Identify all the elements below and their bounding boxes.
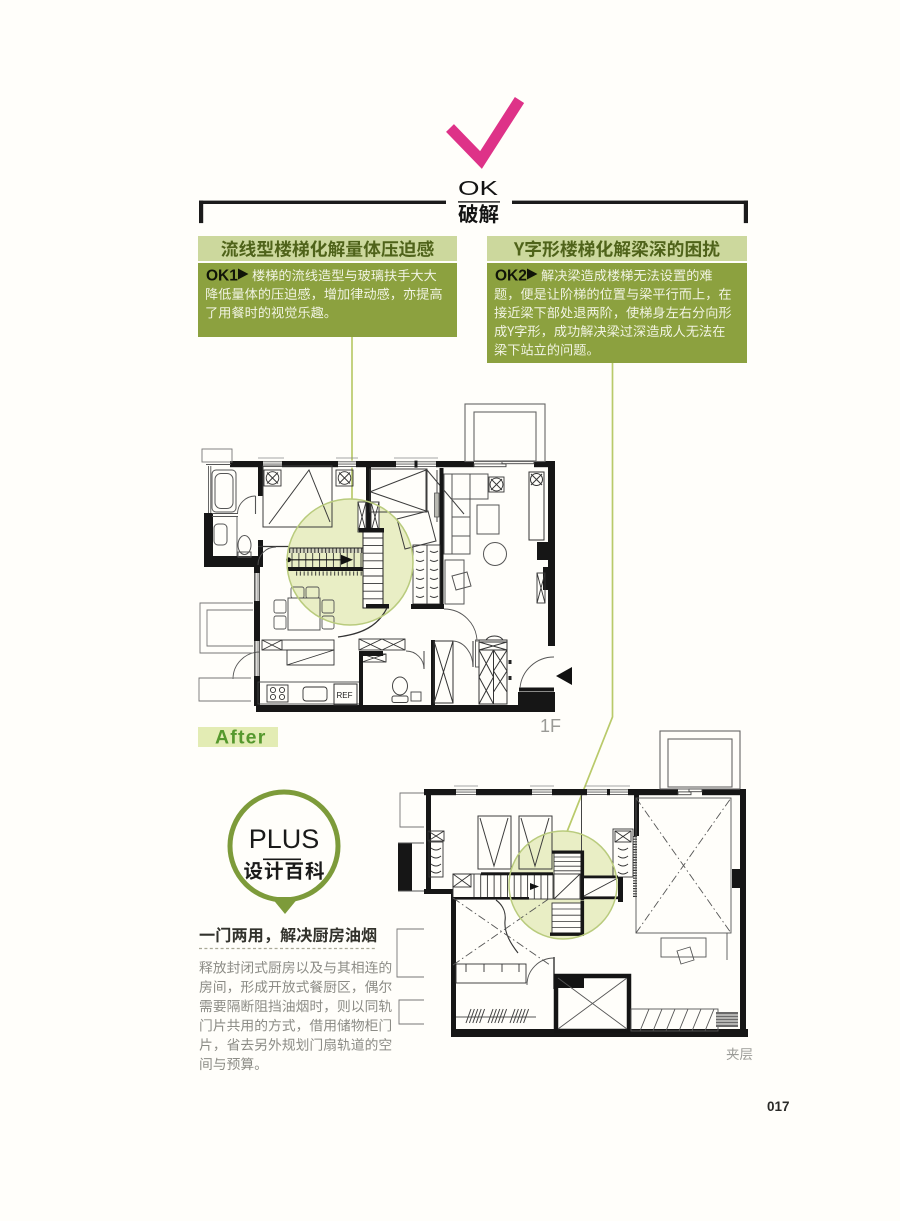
- svg-text:OK1: OK1: [206, 268, 238, 285]
- svg-text:REF: REF: [337, 691, 353, 700]
- svg-text:PLUS: PLUS: [249, 824, 320, 854]
- svg-text:After: After: [215, 727, 267, 749]
- svg-text:OK2: OK2: [495, 268, 527, 285]
- svg-text:1F: 1F: [540, 716, 561, 736]
- svg-text:017: 017: [767, 1099, 790, 1114]
- svg-text:OK: OK: [458, 177, 498, 200]
